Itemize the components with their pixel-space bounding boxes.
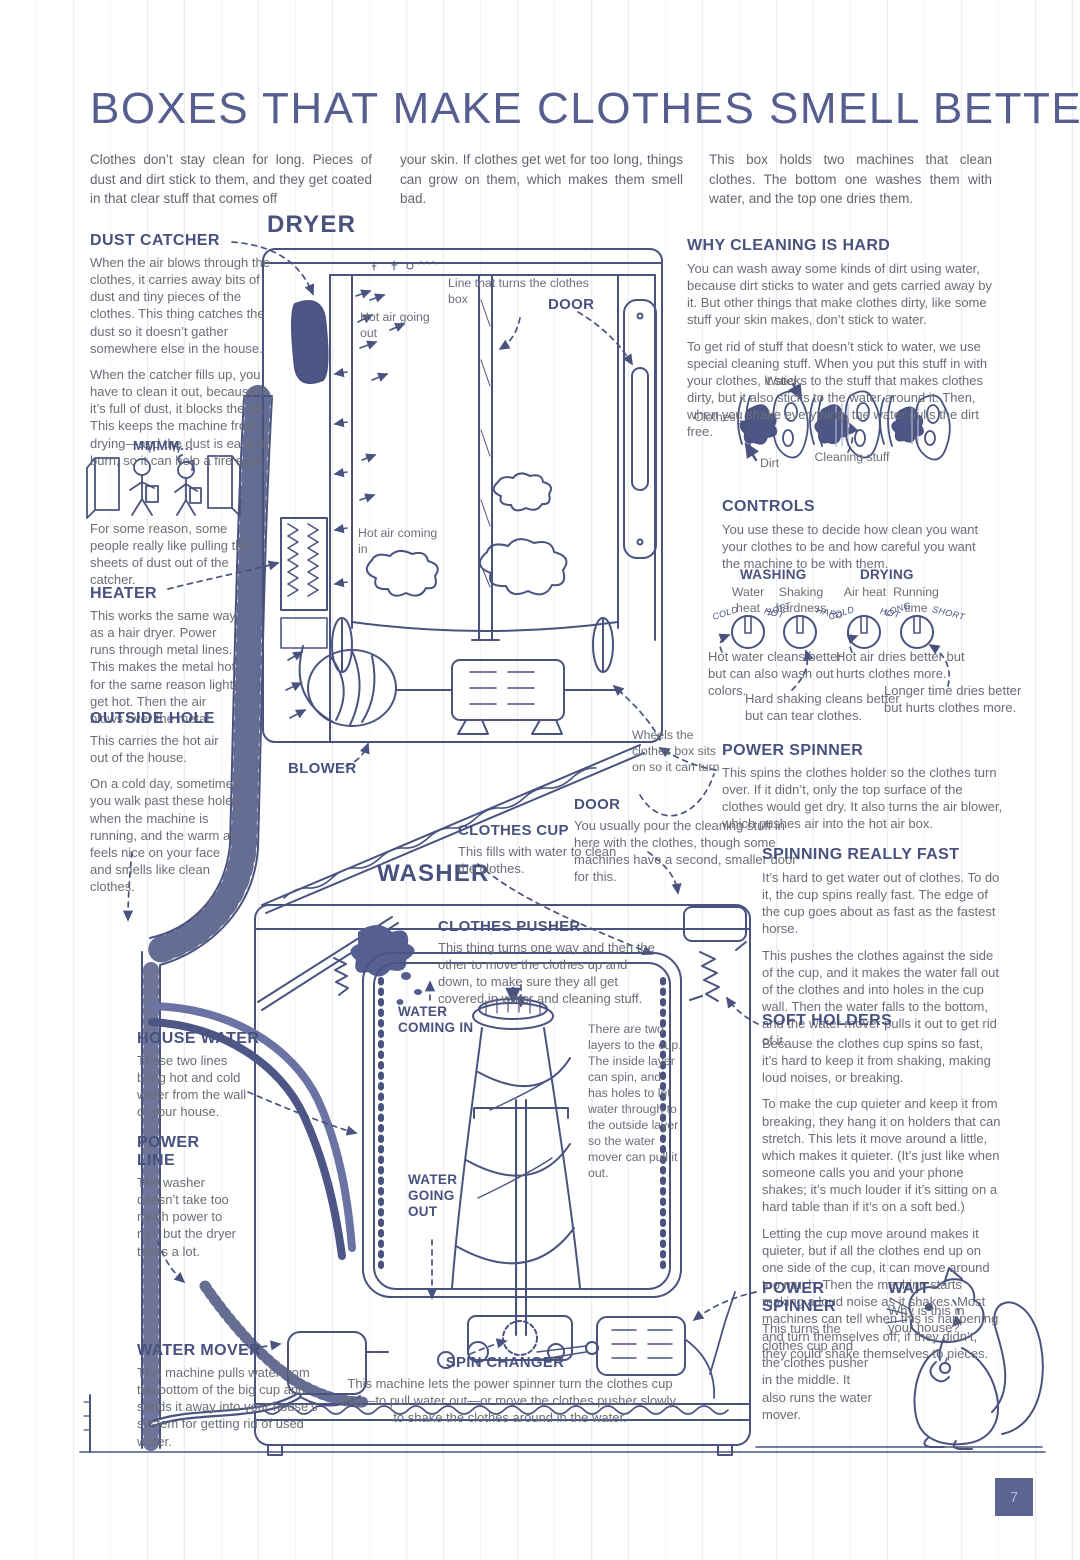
washing-subhead: WASHING	[740, 567, 807, 583]
water-mover-title: WATER MOVER	[137, 1342, 261, 1360]
spin-changer-title: SPIN CHANGER	[340, 1354, 670, 1371]
wheels-label: Wheels the clothes box sits on so it can…	[632, 728, 728, 776]
outside-hole-p2: On a cold day, sometimes you walk past t…	[90, 775, 240, 895]
wait-text: Why is this in your house?	[888, 1302, 988, 1336]
dirt-blob-label: Dirt	[760, 456, 779, 472]
knob3-label: Air heat	[842, 585, 888, 601]
washer-door-title: DOOR	[574, 796, 620, 813]
spinning-fast-p1: It’s hard to get water out of clothes. T…	[762, 870, 999, 936]
page-number: 7	[995, 1478, 1033, 1516]
dust-catcher-p1: When the air blows through the clothes, …	[90, 255, 270, 356]
water-mover-text: This machine pulls water from the bottom…	[137, 1364, 319, 1450]
controls-text: You use these to decide how clean you wa…	[722, 521, 994, 572]
house-water-title: HOUSE WATER	[137, 1030, 259, 1048]
house-water-text: These two lines bring hot and cold water…	[137, 1052, 255, 1121]
water-in-label: WATER COMING IN	[398, 1004, 490, 1036]
power-spinner-bottom-title: POWER SPINNER	[762, 1280, 892, 1317]
soft-holders-p2: To make the cup quieter and keep it from…	[762, 1095, 1002, 1215]
controls-title: CONTROLS	[722, 498, 815, 516]
book-page: { "page": { "title": "BOXES THAT MAKE CL…	[0, 0, 1080, 1560]
clothes-pusher-text: This thing turns one way and then the ot…	[438, 939, 656, 1008]
spin-changer-text: This machine lets the power spinner turn…	[340, 1375, 680, 1426]
clothes-blob-label: Clothes	[694, 410, 736, 426]
dust-catcher-p2: When the catcher fills up, you have to c…	[90, 366, 270, 469]
hot-air-out-label: Hot air going out	[360, 310, 432, 342]
blower-label: BLOWER	[288, 760, 356, 777]
dryer-drawing	[263, 170, 662, 742]
dust-catcher-text: When the air blows through the clothes, …	[90, 254, 270, 469]
hot-air-in-label: Hot air coming in	[358, 526, 438, 558]
clothes-pusher-title: CLOTHES PUSHER	[438, 918, 581, 935]
clothes-cup-title: CLOTHES CUP	[458, 822, 569, 839]
intro-column-2: your skin. If clothes get wet for too lo…	[400, 150, 683, 209]
two-layers-text: There are two layers to the cup. The ins…	[588, 1022, 682, 1182]
page-title: BOXES THAT MAKE CLOTHES SMELL BETTER	[90, 84, 1080, 134]
comic-speech: MMMM...	[133, 438, 194, 453]
soft-holders-p1: Because the clothes cup spins so fast, i…	[762, 1036, 991, 1085]
water-out-label: WATER GOING OUT	[408, 1172, 472, 1221]
power-spinner-bottom-text: This turns the clothes cup and the cloth…	[762, 1320, 874, 1423]
soft-holders-title: SOFT HOLDERS	[762, 1012, 892, 1030]
water-blob-label: Water	[765, 374, 797, 390]
comic-caption: For some reason, some people really like…	[90, 520, 268, 589]
lint-catcher	[292, 301, 328, 383]
dryer-heading: DRYER	[267, 211, 356, 239]
drying-subhead: DRYING	[860, 567, 914, 583]
outside-hole-text: This carries the hot air out of the hous…	[90, 732, 240, 895]
controls-caption-3: Hot air dries better but hurts clothes m…	[836, 648, 976, 682]
dust-catcher-title: DUST CATCHER	[90, 232, 270, 250]
intro-column-3: This box holds two machines that clean c…	[709, 150, 992, 209]
spinning-fast-title: SPINNING REALLY FAST	[762, 846, 959, 864]
controls-caption-4: Longer time dries better but hurts cloth…	[884, 682, 1036, 716]
cleaning-stuff-label: Cleaning stuff	[812, 450, 892, 466]
power-line-text: The washer doesn’t take too much power t…	[137, 1174, 237, 1260]
why-cleaning-title: WHY CLEANING IS HARD	[687, 237, 890, 255]
power-spinner-top-text: This spins the clothes holder so the clo…	[722, 764, 1006, 833]
outside-hole-title: OUTSIDE HOLE	[90, 710, 215, 728]
why-cleaning-p1: You can wash away some kinds of dirt usi…	[687, 261, 992, 327]
intro-column-1: Clothes don’t stay clean for long. Piece…	[90, 150, 372, 209]
outside-hole-p1: This carries the hot air out of the hous…	[90, 733, 219, 765]
power-spinner-top-title: POWER SPINNER	[722, 742, 863, 760]
clothes-cup-text: This fills with water to clean the cloth…	[458, 843, 624, 877]
heater-title: HEATER	[90, 585, 157, 603]
dryer-door-label: DOOR	[548, 296, 594, 313]
power-line-title: POWER LINE	[137, 1134, 227, 1171]
wait-title: WAIT	[888, 1280, 930, 1298]
